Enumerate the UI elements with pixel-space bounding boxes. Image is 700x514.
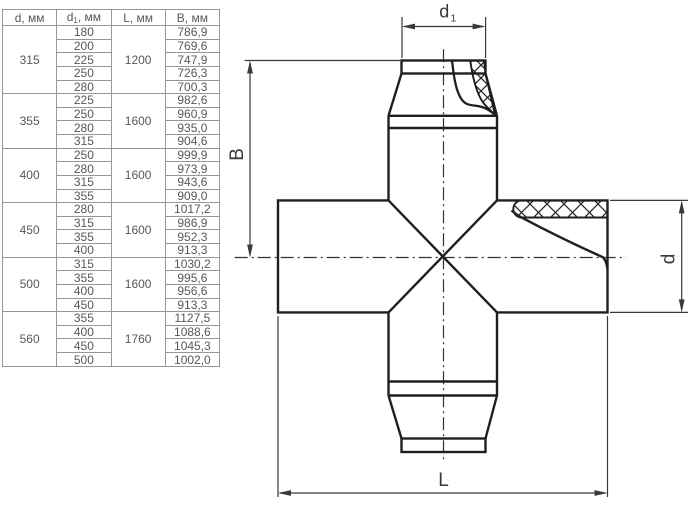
svg-text:1: 1 (450, 12, 456, 24)
svg-text:d: d (439, 2, 449, 22)
svg-text:d: d (658, 254, 679, 265)
svg-text:B: B (227, 148, 248, 161)
svg-text:L: L (438, 470, 449, 491)
